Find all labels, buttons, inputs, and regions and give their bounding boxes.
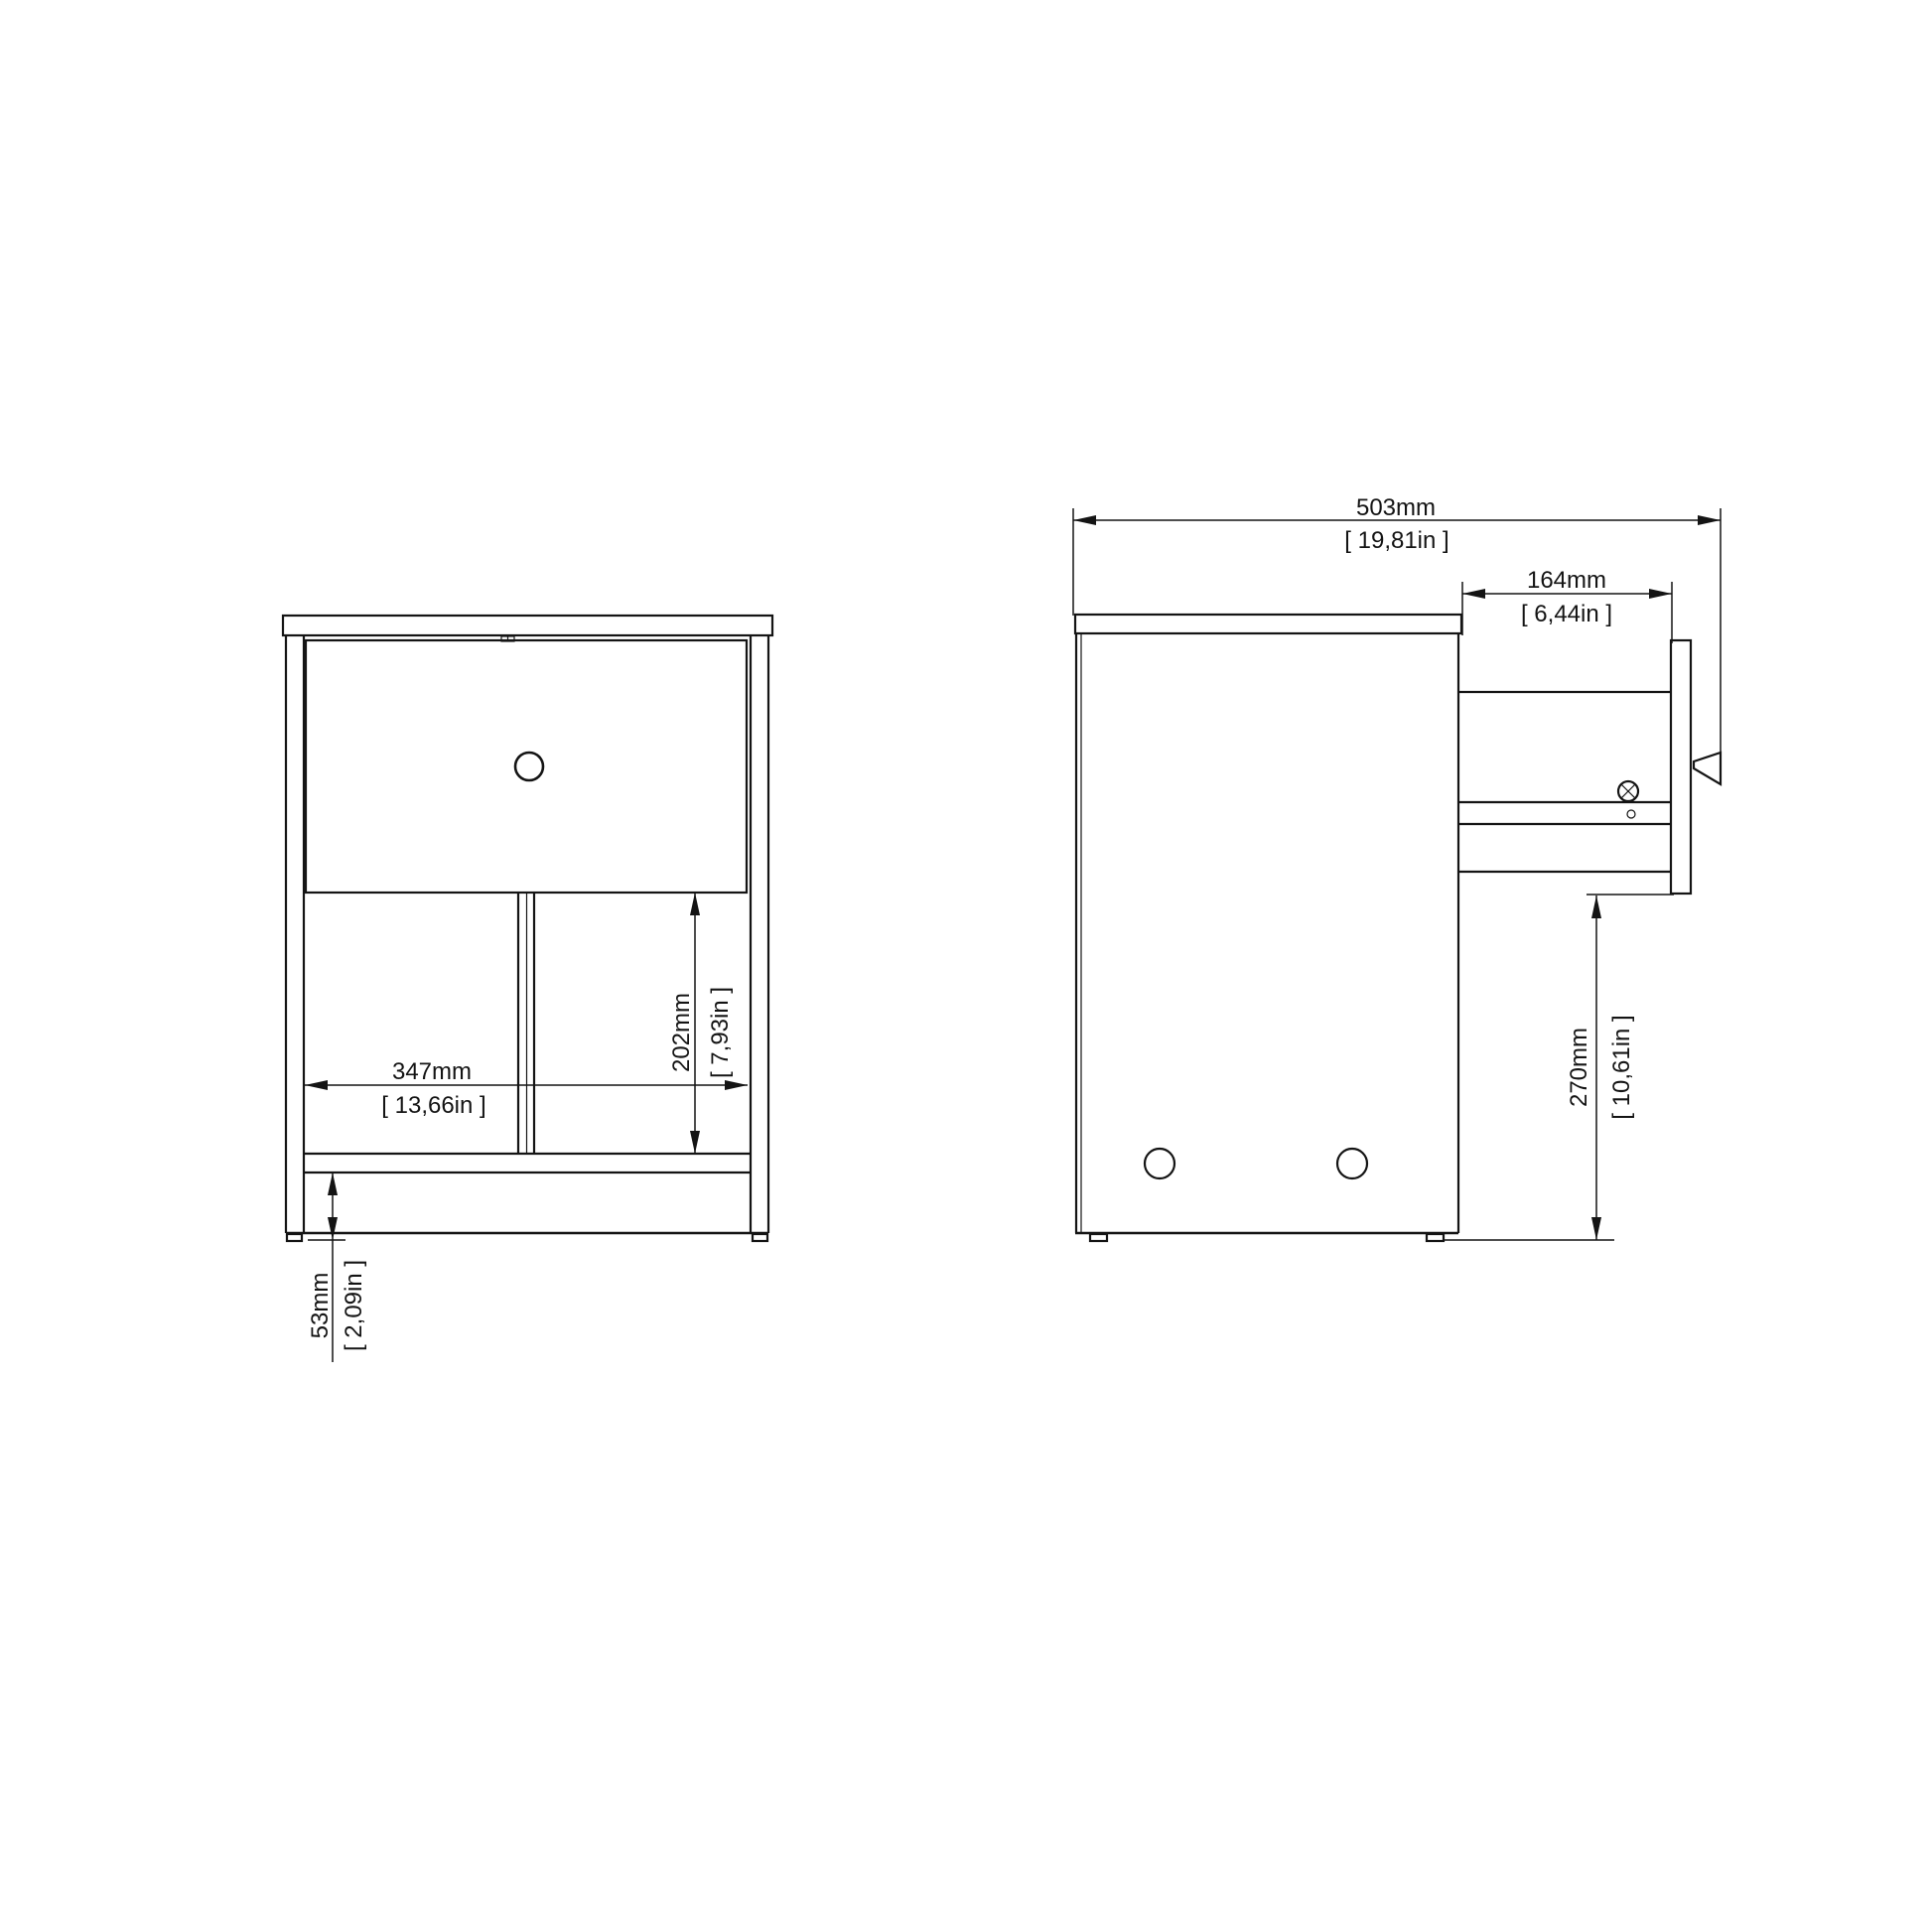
side-view: 503mm [ 19,81in ] 164mm [ 6,44in ] 270mm…: [1073, 494, 1721, 1241]
front-right-foot: [753, 1234, 767, 1241]
dim-side-total-depth: 503mm [ 19,81in ]: [1073, 494, 1721, 784]
dim-front-shelf-inch-label: [ 7,93in ]: [707, 987, 734, 1078]
arrow-down-icon: [690, 1131, 700, 1154]
arrow-down-icon: [328, 1217, 338, 1240]
front-top-panel: [283, 616, 772, 635]
dim-front-base-inch-label: [ 2,09in ]: [341, 1260, 367, 1351]
dim-side-extension-inch-label: [ 6,44in ]: [1521, 601, 1612, 627]
dim-side-depth-inch-label: [ 19,81in ]: [1344, 527, 1449, 554]
furniture-dimension-drawing: 347mm [ 13,66in ] 202mm [ 7,93in ] 53mm …: [0, 0, 1932, 1932]
dim-side-clearance-mm-label: 270mm: [1566, 1028, 1592, 1107]
dim-side-clearance-height: 270mm [ 10,61in ]: [1443, 895, 1674, 1240]
side-cam-hole-front: [1337, 1149, 1367, 1178]
dim-front-shelf-mm-label: 202mm: [668, 993, 695, 1072]
dim-front-base-mm-label: 53mm: [307, 1273, 334, 1339]
dim-front-width-inch-label: [ 13,66in ]: [381, 1092, 485, 1119]
front-drawer-knob: [515, 753, 543, 780]
dim-front-shelf-height: 202mm [ 7,93in ]: [668, 893, 734, 1154]
dim-side-extension-mm-label: 164mm: [1527, 567, 1606, 594]
side-cam-hole-back: [1145, 1149, 1174, 1178]
arrow-right-icon: [1698, 515, 1721, 525]
side-back-foot: [1090, 1234, 1107, 1241]
arrow-left-icon: [305, 1080, 328, 1090]
arrow-right-icon: [725, 1080, 748, 1090]
front-view: 347mm [ 13,66in ] 202mm [ 7,93in ] 53mm …: [283, 616, 772, 1362]
front-drawer-front: [306, 640, 747, 893]
drawer-front-panel-side: [1671, 640, 1691, 894]
side-front-foot: [1427, 1234, 1444, 1241]
front-left-foot: [287, 1234, 302, 1241]
pilot-hole-mark: [1627, 810, 1635, 818]
arrow-up-icon: [690, 893, 700, 915]
arrow-up-icon: [328, 1173, 338, 1195]
arrow-up-icon: [1591, 896, 1601, 918]
dim-side-clearance-inch-label: [ 10,61in ]: [1608, 1015, 1635, 1119]
arrow-down-icon: [1591, 1217, 1601, 1240]
dim-front-width-mm-label: 347mm: [392, 1058, 472, 1085]
dim-side-drawer-extension: 164mm [ 6,44in ]: [1462, 567, 1672, 643]
dim-front-base-height: 53mm [ 2,09in ]: [307, 1173, 367, 1362]
dim-side-depth-mm-label: 503mm: [1356, 494, 1436, 521]
side-top-panel: [1075, 615, 1461, 633]
technical-drawing-page: 347mm [ 13,66in ] 202mm [ 7,93in ] 53mm …: [0, 0, 1932, 1932]
drawer-knob-side-profile: [1694, 753, 1721, 784]
arrow-right-icon: [1649, 589, 1672, 599]
arrow-left-icon: [1462, 589, 1485, 599]
arrow-left-icon: [1073, 515, 1096, 525]
